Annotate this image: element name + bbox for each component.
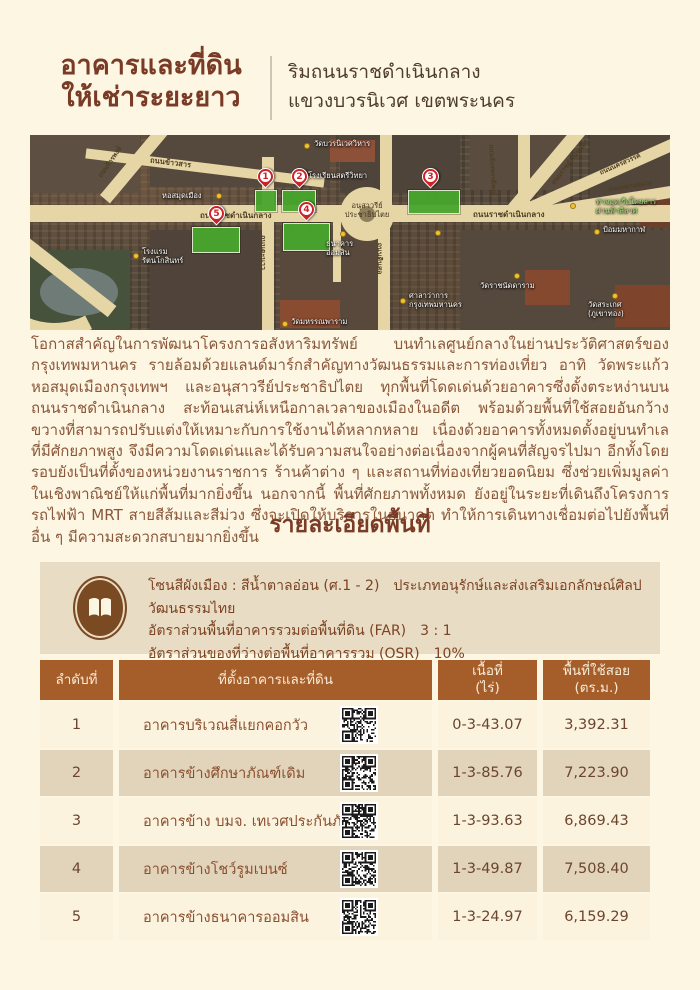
zoning-info-lines: โซนสีผังเมือง : สีน้ำตาลอ่อน (ศ.1 - 2)ปร…: [148, 575, 660, 665]
road-label-ratchadamnoen-klang-east: ถนนราชดำเนินกลาง: [473, 208, 545, 221]
page-title-line1: อาคารและที่ดิน: [38, 50, 264, 82]
poi-dot: [570, 203, 576, 209]
section-title: รายละเอียดพื้นที่: [0, 507, 700, 543]
road-label-dinso: ถนนดินสอ: [373, 243, 384, 275]
table-row: 3 อาคารข้าง บมจ. เทเวศประกันภัย 1-3-93.6…: [40, 798, 651, 844]
col-header-area-unit: (ไร่): [475, 680, 500, 697]
poi-city-library: หอสมุดเมือง: [162, 191, 202, 200]
header-divider: [270, 56, 272, 120]
qr-code: [340, 898, 378, 936]
cell-usable: 6,869.43: [543, 798, 650, 844]
poi-phan-fa-pier: ท่าจอดเรือโดยสาร ผ่านฟ้าลีลาศ: [596, 197, 656, 216]
property-name: อาคารข้างศึกษาภัณฑ์เดิม: [143, 762, 305, 785]
col-header-no-label: ลำดับที่: [55, 672, 97, 689]
col-header-area: เนื้อที่(ไร่): [438, 660, 537, 700]
col-header-usable: พื้นที่ใช้สอย(ตร.ม.): [543, 660, 650, 700]
cell-usable: 7,223.90: [543, 750, 650, 796]
poi-wat-mahannapharam: วัดมหรรณพาราม: [291, 317, 347, 326]
property-name: อาคารบริเวณสี่แยกคอกวัว: [143, 714, 308, 737]
page-title-line2: ให้เช่าระยะยาว: [38, 82, 264, 114]
property-name: อาคารข้าง บมจ. เทเวศประกันภัย: [143, 810, 350, 833]
page-subtitle: ริมถนนราชดำเนินกลาง แขวงบวรนิเวศ เขตพระน…: [288, 58, 515, 115]
page-title: อาคารและที่ดิน ให้เช่าระยะยาว: [38, 50, 264, 114]
parcel-4: [283, 223, 330, 251]
poi-dot: [400, 298, 406, 304]
poi-mahakan-fort: ป้อมมหากาฬ: [603, 225, 645, 234]
poi-dot: [304, 143, 310, 149]
cell-area: 1-3-24.97: [438, 894, 537, 940]
map-pin-2-number: 2: [294, 171, 305, 182]
page-subtitle-line2: แขวงบวรนิเวศ เขตพระนคร: [288, 87, 515, 116]
poi-dot: [435, 230, 441, 236]
poi-wat-ratchanatda: วัดราชนัดดาราม: [480, 281, 535, 290]
cell-location: อาคารข้าง บมจ. เทเวศประกันภัย: [119, 798, 432, 844]
table-header-row: ลำดับที่ ที่ตั้งอาคารและที่ดิน เนื้อที่(…: [40, 660, 651, 700]
poi-dot: [133, 253, 139, 259]
cell-location: อาคารข้างธนาคารออมสิน: [119, 894, 432, 940]
cell-area: 1-3-49.87: [438, 846, 537, 892]
qr-code: [340, 802, 378, 840]
poi-dot: [594, 229, 600, 235]
poi-wat-saket: วัดสระเกศ (ภูเขาทอง): [588, 300, 624, 319]
map-pin-1-number: 1: [260, 171, 271, 182]
qr-code: [340, 850, 378, 888]
poi-dot: [514, 273, 520, 279]
page-subtitle-line1: ริมถนนราชดำเนินกลาง: [288, 58, 515, 87]
far-line: อัตราส่วนพื้นที่อาคารรวมต่อพื้นที่ดิน (F…: [148, 620, 660, 643]
cell-no: 4: [40, 846, 113, 892]
cell-no: 3: [40, 798, 113, 844]
road-label-tanao: ถนนตะนาว: [257, 235, 268, 270]
table-row: 2 อาคารข้างศึกษาภัณฑ์เดิม 1-3-85.76 7,22…: [40, 750, 651, 796]
cell-area: 1-3-93.63: [438, 798, 537, 844]
poi-democracy-monument-label: อนุสาวรีย์ ประชาธิปไตย: [331, 201, 403, 220]
road-dinso: [378, 222, 390, 330]
col-header-location: ที่ตั้งอาคารและที่ดิน: [119, 660, 432, 700]
poi-dot: [282, 321, 288, 327]
zoning-info-box: โซนสีผังเมือง : สีน้ำตาลอ่อน (ศ.1 - 2)ปร…: [40, 562, 660, 654]
cell-usable: 6,159.29: [543, 894, 650, 940]
cell-no: 5: [40, 894, 113, 940]
flyer-page: อาคารและที่ดิน ให้เช่าระยะยาว ริมถนนราชด…: [0, 0, 700, 990]
map-pin-3-number: 3: [425, 171, 436, 182]
poi-gsb-bank: ธนาคาร ออมสิน: [326, 239, 353, 258]
qr-code: [340, 754, 378, 792]
parcel-3: [408, 190, 460, 214]
cell-area: 1-3-85.76: [438, 750, 537, 796]
cell-location: อาคารข้างศึกษาภัณฑ์เดิม: [119, 750, 432, 796]
zone-label: โซนสีผังเมือง : สีน้ำตาลอ่อน (ศ.1 - 2): [148, 578, 379, 594]
map-pin-5-number: 5: [211, 208, 222, 219]
col-header-usable-unit: (ตร.ม.): [574, 680, 618, 697]
poi-wat-bowonniwet: วัดบวรนิเวศวิหาร: [314, 139, 370, 148]
book-icon: [73, 576, 127, 640]
qr-code: [340, 706, 378, 744]
table-row: 4 อาคารข้างโชว์รูมเบนซ์ 1-3-49.87 7,508.…: [40, 846, 651, 892]
far-value: 3 : 1: [420, 623, 451, 639]
col-header-location-label: ที่ตั้งอาคารและที่ดิน: [218, 672, 333, 689]
poi-satriwithaya-school: โรงเรียนสตรีวิทยา: [308, 171, 367, 180]
poi-city-hall: ศาลาว่าการ กรุงเทพมหานคร: [409, 291, 462, 310]
cell-usable: 3,392.31: [543, 702, 650, 748]
property-name: อาคารข้างโชว์รูมเบนซ์: [143, 858, 288, 881]
col-header-no: ลำดับที่: [40, 660, 113, 700]
table-row: 5 อาคารข้างธนาคารออมสิน 1-3-24.97 6,159.…: [40, 894, 651, 940]
map-pin-4-number: 4: [301, 204, 312, 215]
cell-area: 0-3-43.07: [438, 702, 537, 748]
cell-usable: 7,508.40: [543, 846, 650, 892]
poi-dot: [340, 231, 346, 237]
cell-location: อาคารบริเวณสี่แยกคอกวัว: [119, 702, 432, 748]
table-row: 1 อาคารบริเวณสี่แยกคอกวัว 0-3-43.07 3,39…: [40, 702, 651, 748]
cell-location: อาคารข้างโชว์รูมเบนซ์: [119, 846, 432, 892]
properties-table: ลำดับที่ ที่ตั้งอาคารและที่ดิน เนื้อที่(…: [40, 660, 651, 942]
location-map: 1 2 3 4 5 ถนนข้าวสาร ถนนตะนาว ถนนดินสอ ถ…: [30, 135, 670, 330]
col-header-area-label: เนื้อที่: [472, 663, 503, 680]
col-header-usable-label: พื้นที่ใช้สอย: [563, 663, 630, 680]
poi-dot: [612, 293, 618, 299]
far-label: อัตราส่วนพื้นที่อาคารรวมต่อพื้นที่ดิน (F…: [148, 623, 406, 639]
poi-rattanakosin-hotel: โรงแรม รัตนโกสินทร์: [142, 247, 183, 266]
open-book-icon: [85, 593, 115, 623]
zone-line: โซนสีผังเมือง : สีน้ำตาลอ่อน (ศ.1 - 2)ปร…: [148, 575, 660, 620]
poi-dot: [216, 193, 222, 199]
parcel-5: [192, 227, 240, 253]
property-name: อาคารข้างธนาคารออมสิน: [143, 906, 309, 929]
cell-no: 1: [40, 702, 113, 748]
cell-no: 2: [40, 750, 113, 796]
